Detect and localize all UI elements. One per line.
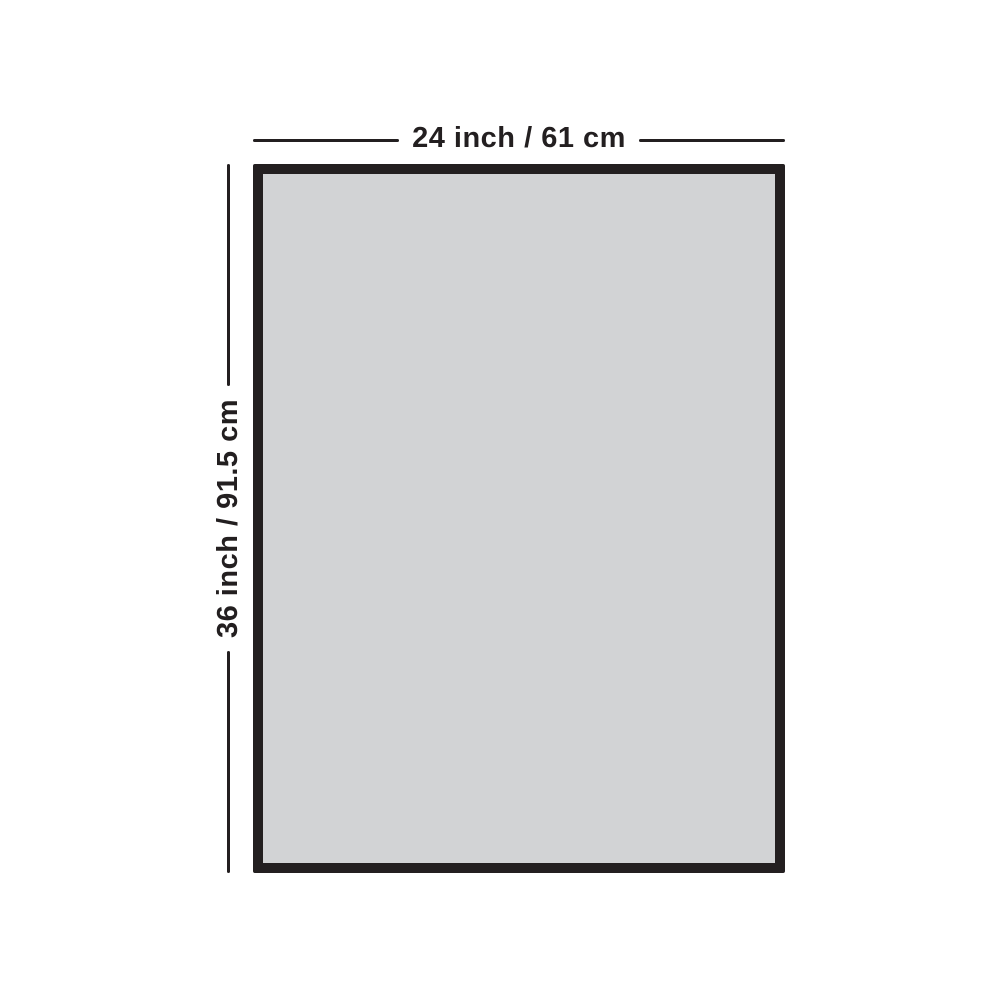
height-dimension: 36 inch / 91.5 cm bbox=[210, 164, 246, 873]
width-dimension: 24 inch / 61 cm bbox=[253, 122, 785, 158]
height-dim-line-top bbox=[227, 164, 230, 386]
width-dim-label: 24 inch / 61 cm bbox=[399, 122, 639, 159]
height-dim-line-bottom bbox=[227, 651, 230, 873]
width-dim-line-left bbox=[253, 139, 399, 142]
dimension-diagram: 24 inch / 61 cm 36 inch / 91.5 cm bbox=[0, 0, 1000, 1000]
width-dim-line-right bbox=[639, 139, 785, 142]
board-frame bbox=[253, 164, 785, 873]
board-surface bbox=[263, 174, 775, 863]
height-dim-label: 36 inch / 91.5 cm bbox=[212, 386, 245, 651]
